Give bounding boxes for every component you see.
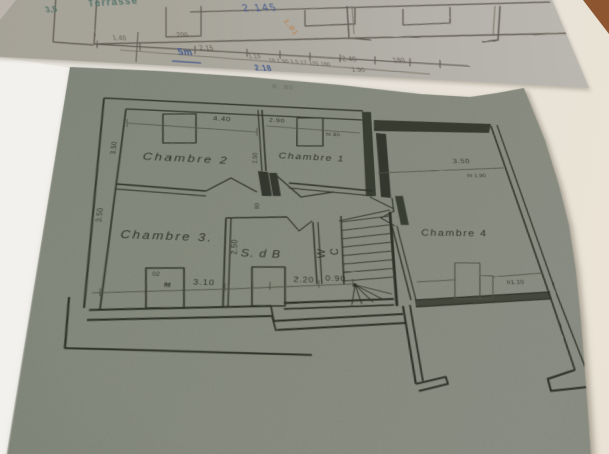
svg-text:Chambre 4: Chambre 4 — [420, 227, 488, 238]
svg-text:W: W — [314, 249, 327, 259]
svg-text:0.90: 0.90 — [325, 273, 346, 283]
svg-text:200: 200 — [176, 32, 190, 39]
svg-text:180: 180 — [392, 58, 407, 66]
svg-text:10 1.90 1.5 17 120 180: 10 1.90 1.5 17 120 180 — [268, 57, 332, 68]
svg-text:3.50: 3.50 — [95, 208, 106, 223]
svg-text:2.50: 2.50 — [231, 239, 240, 255]
svg-text:2.50: 2.50 — [252, 152, 259, 163]
svg-text:h1.10: h1.10 — [506, 280, 525, 287]
svg-text:1.10: 1.10 — [248, 53, 262, 60]
svg-text:Terrasse: Terrasse — [86, 0, 140, 10]
svg-text:2.145: 2.145 — [241, 2, 280, 15]
svg-text:5m: 5m — [176, 46, 194, 58]
svg-text:2.20: 2.20 — [293, 274, 314, 284]
svg-text:ht 80: ht 80 — [326, 132, 340, 138]
svg-text:02: 02 — [152, 272, 160, 279]
svg-text:80: 80 — [254, 203, 261, 209]
svg-text:1.40: 1.40 — [112, 35, 128, 42]
svg-text:3.50: 3.50 — [452, 159, 470, 165]
svg-text:3.50: 3.50 — [109, 141, 119, 155]
svg-text:ht: ht — [165, 281, 172, 288]
svg-text:4.40: 4.40 — [213, 116, 231, 123]
svg-text:ht 1.90: ht 1.90 — [467, 173, 487, 179]
svg-text:2.15: 2.15 — [199, 45, 215, 52]
svg-text:2.40: 2.40 — [341, 56, 358, 64]
svg-text:1.80: 1.80 — [380, 151, 387, 163]
svg-text:3,5: 3,5 — [44, 4, 59, 14]
svg-text:2.90: 2.90 — [269, 117, 285, 124]
svg-text:1,81: 1,81 — [281, 18, 299, 36]
svg-text:C: C — [327, 248, 340, 256]
svg-text:S. d B: S. d B — [241, 248, 282, 261]
svg-text:3.10: 3.10 — [193, 277, 215, 287]
